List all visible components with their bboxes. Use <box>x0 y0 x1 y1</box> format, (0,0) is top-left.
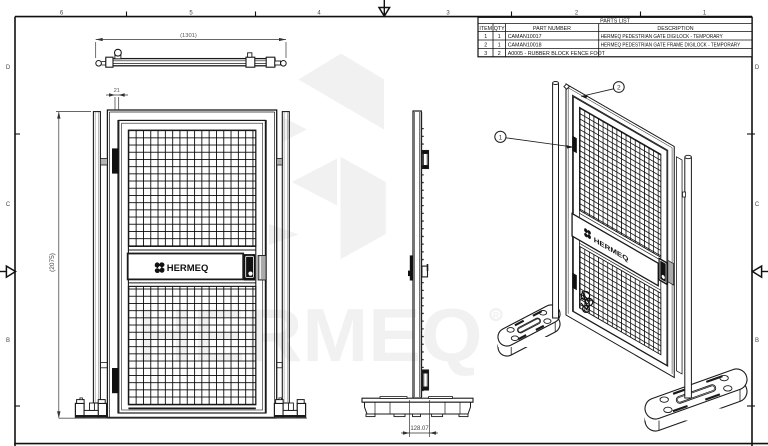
svg-text:CAMAN10017: CAMAN10017 <box>508 34 542 40</box>
svg-text:D: D <box>755 65 760 71</box>
svg-text:CAMAN10018: CAMAN10018 <box>508 43 542 49</box>
svg-text:HERMEQ: HERMEQ <box>167 263 209 273</box>
svg-text:ITEM: ITEM <box>479 26 492 32</box>
svg-text:B: B <box>6 338 10 344</box>
svg-text:HERMEQ PEDESTRIAN GATE DIGILOC: HERMEQ PEDESTRIAN GATE DIGILOCK - TEMPOR… <box>601 34 723 40</box>
svg-text:DESCRIPTION: DESCRIPTION <box>657 26 693 32</box>
svg-text:2: 2 <box>617 85 621 92</box>
svg-text:(2075): (2075) <box>49 253 56 272</box>
svg-text:1: 1 <box>498 34 501 40</box>
svg-text:1: 1 <box>484 34 487 40</box>
svg-text:B: B <box>755 338 759 344</box>
svg-text:D: D <box>6 65 11 71</box>
svg-text:R: R <box>493 310 499 320</box>
svg-text:QTY: QTY <box>494 26 505 32</box>
svg-text:128.07: 128.07 <box>410 426 429 432</box>
svg-text:PARTS LIST: PARTS LIST <box>600 18 631 24</box>
svg-text:2: 2 <box>484 43 487 49</box>
svg-text:2: 2 <box>498 51 501 57</box>
svg-text:1: 1 <box>498 43 501 49</box>
svg-text:3: 3 <box>484 51 487 57</box>
svg-text:(1301): (1301) <box>180 33 197 39</box>
svg-text:21: 21 <box>114 88 120 94</box>
svg-text:PART NUMBER: PART NUMBER <box>533 26 571 32</box>
svg-text:A0005 - RUBBER BLOCK FENCE FOO: A0005 - RUBBER BLOCK FENCE FOOT <box>508 51 606 57</box>
svg-text:C: C <box>6 202 11 208</box>
svg-text:1: 1 <box>499 134 503 141</box>
svg-text:C: C <box>755 202 760 208</box>
svg-text:HERMEQ PEDESTRIAN GATE FRAME D: HERMEQ PEDESTRIAN GATE FRAME DIGILOCK - … <box>601 43 741 49</box>
